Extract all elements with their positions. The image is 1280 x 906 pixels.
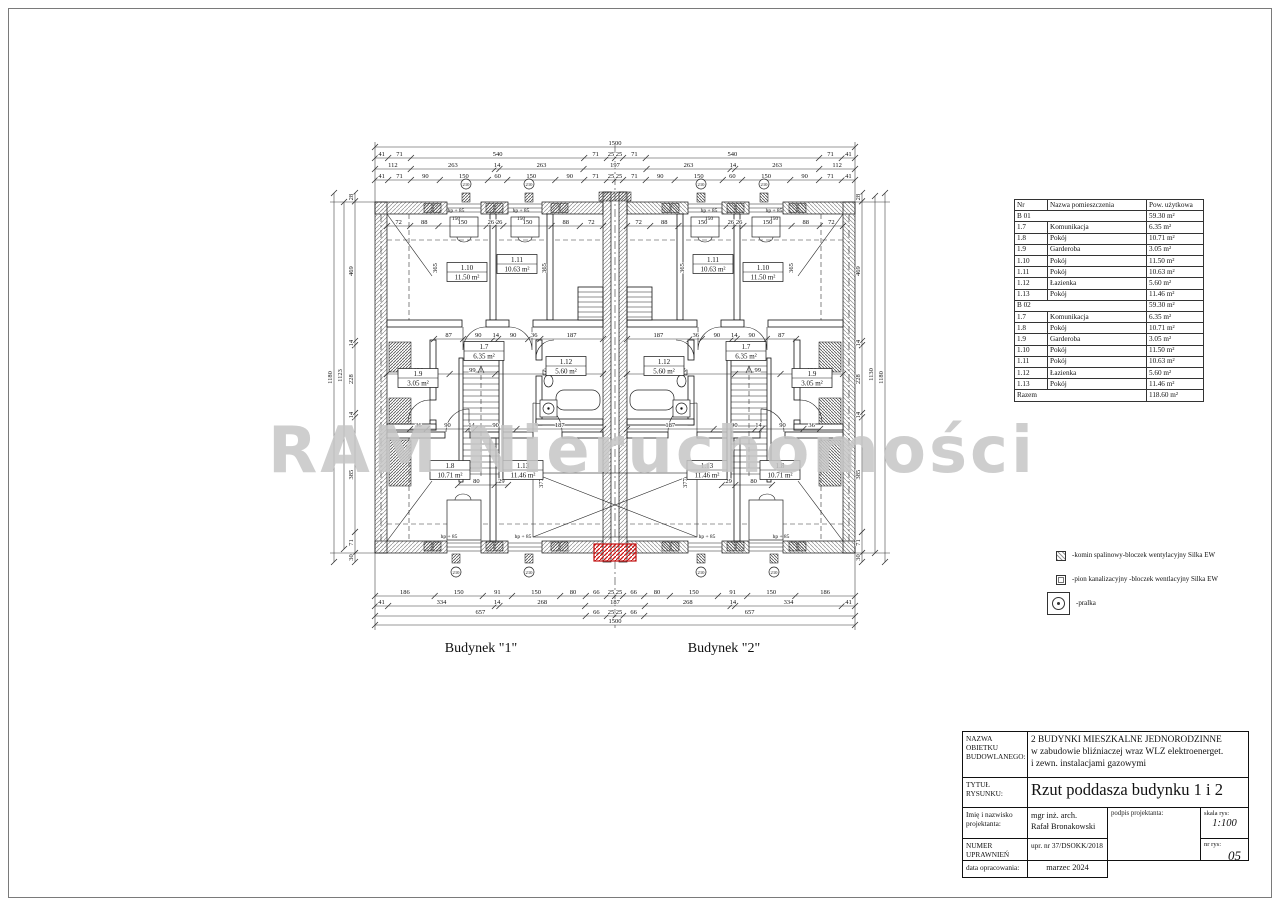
svg-text:150: 150 <box>689 589 699 596</box>
drawing-title-value: Rzut poddasza budynku 1 i 2 <box>1028 778 1249 808</box>
table-row: B 0259.30 m² <box>1015 300 1204 311</box>
dim-right-inner: 1130 <box>868 193 878 556</box>
svg-text:150: 150 <box>531 589 541 596</box>
svg-text:28: 28 <box>348 194 355 201</box>
cell-nr: 1.8 <box>1015 233 1048 244</box>
table-row: 1.10Pokój11.50 m² <box>1015 345 1204 356</box>
table-row: B 0159.30 m² <box>1015 211 1204 222</box>
room-label-b2-19: 1.9 3.05 m² <box>792 369 832 388</box>
svg-text:263: 263 <box>772 162 782 169</box>
building-2-caption: Budynek "2" <box>688 641 760 656</box>
svg-text:80: 80 <box>654 589 661 596</box>
svg-text:87: 87 <box>445 332 452 339</box>
svg-text:88: 88 <box>661 219 668 226</box>
chimney-highlight <box>594 544 636 561</box>
cell-area: 6.35 m² <box>1147 222 1204 233</box>
cell-area: 5.60 m² <box>1147 278 1204 289</box>
svg-text:187: 187 <box>555 422 566 429</box>
svg-text:99: 99 <box>469 367 476 374</box>
svg-text:365: 365 <box>432 263 439 273</box>
svg-text:657: 657 <box>476 609 487 616</box>
svg-text:14: 14 <box>348 339 355 346</box>
table-row: 1.7Komunikacja6.35 m² <box>1015 222 1204 233</box>
cell-area: 59.30 m² <box>1147 211 1204 222</box>
svg-text:hp + 85: hp + 85 <box>766 208 783 214</box>
svg-text:150: 150 <box>452 216 461 222</box>
svg-text:41: 41 <box>378 151 385 158</box>
svg-text:210: 210 <box>526 182 534 187</box>
svg-text:hp + 85: hp + 85 <box>441 534 458 540</box>
cell-name: Garderoba <box>1048 334 1147 345</box>
cell-area: 11.46 m² <box>1147 289 1204 300</box>
cell-name: Pokój <box>1048 289 1147 300</box>
cell-group: Razem <box>1015 390 1147 401</box>
party-wall <box>533 145 697 628</box>
cell-area: 118.60 m² <box>1147 390 1204 401</box>
svg-text:36: 36 <box>415 422 422 429</box>
svg-text:hp + 85: hp + 85 <box>515 534 532 540</box>
svg-text:10.71 m²: 10.71 m² <box>767 472 792 480</box>
svg-text:88: 88 <box>802 219 809 226</box>
cell-name: Pokój <box>1048 233 1147 244</box>
header-nr: Nr <box>1015 200 1048 211</box>
svg-text:71: 71 <box>631 151 638 158</box>
table-row: 1.11Pokój10.63 m² <box>1015 356 1204 367</box>
svg-text:3.05 m²: 3.05 m² <box>801 380 823 388</box>
svg-text:90: 90 <box>444 422 451 429</box>
room-label-b2-110: 1.10 11.50 m² <box>743 263 783 282</box>
svg-text:210: 210 <box>463 182 471 187</box>
dim-bottom-2: 41334142681872681433441 <box>372 599 858 609</box>
svg-text:60: 60 <box>494 173 501 180</box>
table-row: 1.10Pokój11.50 m² <box>1015 256 1204 267</box>
svg-text:1.13: 1.13 <box>701 462 714 470</box>
cell-nr: 1.12 <box>1015 278 1048 289</box>
svg-text:1.9: 1.9 <box>414 370 423 378</box>
svg-text:11.46 m²: 11.46 m² <box>511 472 536 480</box>
svg-text:72: 72 <box>635 219 642 226</box>
signature-cell: podpis projektanta: <box>1108 808 1201 861</box>
svg-text:11.50 m²: 11.50 m² <box>455 274 480 282</box>
svg-text:66: 66 <box>630 609 637 616</box>
svg-text:469: 469 <box>855 266 862 276</box>
svg-text:1.12: 1.12 <box>658 358 671 366</box>
svg-text:365: 365 <box>788 263 795 273</box>
svg-text:14: 14 <box>468 422 475 429</box>
svg-text:210: 210 <box>761 182 769 187</box>
svg-text:90: 90 <box>748 332 755 339</box>
cell-name: Garderoba <box>1048 244 1147 255</box>
dim-left-inner: 1123 <box>337 199 347 552</box>
room-label-b1-18: 1.8 10.71 m² <box>430 461 470 480</box>
svg-text:334: 334 <box>784 599 795 606</box>
svg-text:5.60 m²: 5.60 m² <box>653 368 675 376</box>
cell-area: 10.71 m² <box>1147 233 1204 244</box>
table-row: Razem118.60 m² <box>1015 390 1204 401</box>
cell-nr: 1.7 <box>1015 222 1048 233</box>
svg-text:88: 88 <box>421 219 428 226</box>
svg-text:41: 41 <box>378 599 385 606</box>
svg-text:150: 150 <box>766 589 776 596</box>
svg-text:71: 71 <box>348 539 355 546</box>
cell-area: 3.05 m² <box>1147 244 1204 255</box>
dim-top-2: 4171540712525715407141 <box>372 151 858 161</box>
sheet-number-label: nr rys: <box>1204 841 1245 848</box>
svg-text:1.11: 1.11 <box>511 256 523 264</box>
svg-text:14: 14 <box>494 599 501 606</box>
room-label-b2-112: 1.12 5.60 m² <box>644 357 684 376</box>
svg-text:71: 71 <box>855 539 862 546</box>
svg-text:112: 112 <box>388 162 398 169</box>
svg-text:210: 210 <box>771 570 779 575</box>
room-area-table: Nr Nazwa pomieszczenia Pow. użytkowa B 0… <box>1014 199 1204 402</box>
cell-name: Pokój <box>1048 345 1147 356</box>
svg-text:41: 41 <box>845 599 852 606</box>
svg-text:263: 263 <box>684 162 694 169</box>
svg-text:41: 41 <box>378 173 385 180</box>
svg-text:150: 150 <box>454 589 464 596</box>
svg-text:5.60 m²: 5.60 m² <box>555 368 577 376</box>
svg-text:150: 150 <box>705 216 714 222</box>
legend-item-komin: -komin spalinowy-bloczek wentylacyjny Si… <box>1072 551 1215 559</box>
cell-area: 11.50 m² <box>1147 256 1204 267</box>
dim-b1-corr: 8790149036187 <box>431 332 606 342</box>
svg-text:187: 187 <box>653 332 664 339</box>
svg-text:11.50 m²: 11.50 m² <box>751 274 776 282</box>
dim-right-col: 2846914228143857130 <box>855 190 865 565</box>
sheet-number-cell: nr rys: 05 <box>1201 839 1249 861</box>
svg-text:1.11: 1.11 <box>707 256 719 264</box>
room-label-b1-17: 1.7 6.35 m² <box>464 342 504 361</box>
svg-text:1.13: 1.13 <box>517 462 530 470</box>
svg-text:10.71 m²: 10.71 m² <box>437 472 462 480</box>
cell-nr: 1.7 <box>1015 312 1048 323</box>
room-label-b1-111: 1.11 10.63 m² <box>497 255 537 274</box>
drawing-sheet: 1500 4171540712525715407141 112263142631… <box>0 0 1280 906</box>
svg-text:25: 25 <box>608 609 615 616</box>
svg-text:14: 14 <box>855 411 862 418</box>
cell-group: B 01 <box>1015 211 1147 222</box>
svg-text:268: 268 <box>683 599 693 606</box>
svg-text:1.8: 1.8 <box>776 462 785 470</box>
legend-item-pralka: -pralka <box>1076 599 1096 607</box>
scale-cell: skala rys: 1:100 <box>1201 808 1249 839</box>
svg-text:90: 90 <box>475 332 482 339</box>
sheet-number-value: 05 <box>1204 848 1245 861</box>
svg-text:1130: 1130 <box>868 368 875 381</box>
cell-name: Pokój <box>1048 323 1147 334</box>
svg-text:14: 14 <box>755 422 762 429</box>
cell-nr: 1.10 <box>1015 256 1048 267</box>
svg-text:187: 187 <box>567 332 578 339</box>
cell-area: 11.50 m² <box>1147 345 1204 356</box>
room-label-b1-110: 1.10 11.50 m² <box>447 263 487 282</box>
svg-text:228: 228 <box>855 374 862 384</box>
svg-text:187: 187 <box>610 599 621 606</box>
svg-text:91: 91 <box>494 589 501 596</box>
cell-name: Łazienka <box>1048 368 1147 379</box>
dim-left-col: 2846914228143857130 <box>348 190 358 565</box>
cell-area: 6.35 m² <box>1147 312 1204 323</box>
cell-name: Pokój <box>1048 267 1147 278</box>
svg-text:26: 26 <box>488 219 495 226</box>
svg-text:1123: 1123 <box>337 369 344 382</box>
svg-text:41: 41 <box>845 173 852 180</box>
svg-text:1180: 1180 <box>878 371 885 384</box>
table-row: 1.12Łazienka5.60 m² <box>1015 278 1204 289</box>
cell-name: Pokój <box>1048 256 1147 267</box>
svg-text:14: 14 <box>730 162 737 169</box>
svg-text:71: 71 <box>631 173 638 180</box>
svg-text:25: 25 <box>616 609 623 616</box>
svg-text:hp + 85: hp + 85 <box>513 208 530 214</box>
legend-item-pion: -pion kanalizacyjny -bloczek wentlacyjny… <box>1072 575 1218 583</box>
pralka-icon <box>1047 592 1070 615</box>
interior-vertical-dims: 365 365 377 365 365 377 <box>432 263 795 488</box>
svg-text:1.7: 1.7 <box>480 343 489 351</box>
svg-text:210: 210 <box>698 182 706 187</box>
svg-text:90: 90 <box>657 173 664 180</box>
svg-text:71: 71 <box>396 173 403 180</box>
drawing-title-label: TYTUŁ RYSUNKU: <box>963 778 1028 808</box>
object-name-value: 2 BUDYNKI MIESZKALNE JEDNORODZINNE w zab… <box>1028 732 1249 778</box>
cell-area: 5.60 m² <box>1147 368 1204 379</box>
svg-text:1.12: 1.12 <box>560 358 573 366</box>
svg-text:30: 30 <box>855 554 862 561</box>
svg-text:334: 334 <box>437 599 448 606</box>
svg-text:36: 36 <box>692 332 699 339</box>
permit-label: NUMER UPRAWNIEŃ BUDOWLANYCH: <box>963 839 1028 861</box>
cell-nr: 1.13 <box>1015 379 1048 390</box>
svg-text:91: 91 <box>729 589 736 596</box>
svg-text:210: 210 <box>698 570 706 575</box>
table-row: 1.7Komunikacja6.35 m² <box>1015 312 1204 323</box>
room-label-b1-112: 1.12 5.60 m² <box>546 357 586 376</box>
cell-nr: 1.13 <box>1015 289 1048 300</box>
svg-text:36: 36 <box>531 332 538 339</box>
svg-text:1500: 1500 <box>609 618 622 625</box>
date-label: data opracowania: <box>963 861 1028 878</box>
komin-icon <box>1056 551 1066 561</box>
svg-text:90: 90 <box>422 173 429 180</box>
cell-name: Komunikacja <box>1048 312 1147 323</box>
room-label-b2-111: 1.11 10.63 m² <box>693 255 733 274</box>
cell-area: 10.71 m² <box>1147 323 1204 334</box>
scale-value: 1:100 <box>1204 818 1245 829</box>
svg-text:71: 71 <box>827 151 834 158</box>
svg-text:10.63 m²: 10.63 m² <box>504 266 529 274</box>
dim-top-3: 1122631426319726314263112 <box>372 162 858 172</box>
cell-area: 11.46 m² <box>1147 379 1204 390</box>
cell-name: Pokój <box>1048 379 1147 390</box>
table-row: 1.8Pokój10.71 m² <box>1015 323 1204 334</box>
cell-name: Pokój <box>1048 356 1147 367</box>
svg-text:71: 71 <box>827 173 834 180</box>
svg-text:1.10: 1.10 <box>757 264 770 272</box>
svg-text:72: 72 <box>828 219 835 226</box>
svg-text:25: 25 <box>616 151 623 158</box>
svg-text:210: 210 <box>526 570 534 575</box>
svg-text:657: 657 <box>745 609 756 616</box>
svg-text:150: 150 <box>770 216 779 222</box>
svg-text:99: 99 <box>754 367 761 374</box>
table-row: 1.13Pokój11.46 m² <box>1015 379 1204 390</box>
room-label-b2-17: 1.7 6.35 m² <box>726 342 766 361</box>
svg-text:14: 14 <box>731 332 738 339</box>
table-row: 1.11Pokój10.63 m² <box>1015 267 1204 278</box>
svg-text:26: 26 <box>736 219 743 226</box>
object-name-label: NAZWA OBIETKU BUDOWLANEGO: <box>963 732 1028 778</box>
designer-label: Imię i nazwisko projektanta: <box>963 808 1028 839</box>
svg-text:hp + 85: hp + 85 <box>773 534 790 540</box>
svg-text:28: 28 <box>855 194 862 201</box>
svg-text:60: 60 <box>729 173 736 180</box>
cell-nr: 1.11 <box>1015 356 1048 367</box>
svg-text:26: 26 <box>728 219 735 226</box>
svg-text:263: 263 <box>537 162 547 169</box>
svg-text:14: 14 <box>855 339 862 346</box>
title-block: NAZWA OBIETKU BUDOWLANEGO: 2 BUDYNKI MIE… <box>962 731 1249 878</box>
svg-text:14: 14 <box>492 332 499 339</box>
table-row: 1.8Pokój10.71 m² <box>1015 233 1204 244</box>
dim-b2-corr: 1873690149087 <box>624 332 799 342</box>
svg-text:197: 197 <box>610 162 621 169</box>
svg-text:30: 30 <box>348 554 355 561</box>
svg-text:80: 80 <box>473 478 480 485</box>
svg-text:90: 90 <box>492 422 499 429</box>
svg-text:hp + 85: hp + 85 <box>699 534 716 540</box>
svg-text:71: 71 <box>592 173 599 180</box>
cell-nr: 1.11 <box>1015 267 1048 278</box>
svg-text:66: 66 <box>630 589 637 596</box>
permit-value: upr. nr 37/DSOKK/2018 <box>1028 839 1108 861</box>
cell-nr: 1.8 <box>1015 323 1048 334</box>
svg-text:187: 187 <box>665 422 676 429</box>
svg-text:14: 14 <box>494 162 501 169</box>
svg-text:90: 90 <box>801 173 808 180</box>
room-label-b2-18: 1.8 10.71 m² <box>760 461 800 480</box>
svg-text:71: 71 <box>396 151 403 158</box>
svg-text:540: 540 <box>728 151 738 158</box>
svg-text:36: 36 <box>808 422 815 429</box>
svg-text:26: 26 <box>496 219 503 226</box>
svg-text:25: 25 <box>616 173 623 180</box>
header-area: Pow. użytkowa <box>1147 200 1204 211</box>
svg-text:1.10: 1.10 <box>461 264 474 272</box>
table-row: 1.12Łazienka5.60 m² <box>1015 368 1204 379</box>
svg-text:1500: 1500 <box>609 140 622 147</box>
svg-text:6.35 m²: 6.35 m² <box>735 353 757 361</box>
svg-text:385: 385 <box>855 470 862 480</box>
header-name: Nazwa pomieszczenia <box>1048 200 1147 211</box>
room-label-b1-19: 1.9 3.05 m² <box>398 369 438 388</box>
svg-text:186: 186 <box>820 589 831 596</box>
scale-label: skala rys: <box>1204 810 1245 817</box>
svg-text:210: 210 <box>453 570 461 575</box>
svg-text:186: 186 <box>400 589 411 596</box>
cell-area: 59.30 m² <box>1147 300 1204 311</box>
svg-text:14: 14 <box>348 411 355 418</box>
svg-text:228: 228 <box>348 374 355 384</box>
svg-text:90: 90 <box>510 332 517 339</box>
svg-text:41: 41 <box>845 151 852 158</box>
svg-text:150: 150 <box>517 216 526 222</box>
building-1-caption: Budynek "1" <box>445 641 517 656</box>
svg-text:66: 66 <box>593 609 600 616</box>
room-label-b2-113: 1.13 11.46 m² <box>687 461 727 480</box>
cell-nr: 1.9 <box>1015 244 1048 255</box>
svg-text:66: 66 <box>593 589 600 596</box>
svg-text:540: 540 <box>493 151 503 158</box>
svg-text:11.46 m²: 11.46 m² <box>695 472 720 480</box>
svg-text:1.7: 1.7 <box>742 343 751 351</box>
svg-text:1180: 1180 <box>327 371 334 384</box>
svg-text:87: 87 <box>778 332 785 339</box>
svg-text:80: 80 <box>570 589 577 596</box>
svg-text:72: 72 <box>588 219 595 226</box>
svg-text:hp + 85: hp + 85 <box>701 208 718 214</box>
svg-text:10.63 m²: 10.63 m² <box>700 266 725 274</box>
svg-text:268: 268 <box>537 599 547 606</box>
svg-text:72: 72 <box>395 219 402 226</box>
cell-area: 10.63 m² <box>1147 356 1204 367</box>
svg-text:25: 25 <box>608 173 615 180</box>
svg-text:365: 365 <box>541 263 548 273</box>
svg-text:6.35 m²: 6.35 m² <box>473 353 495 361</box>
svg-text:71: 71 <box>592 151 599 158</box>
date-value: marzec 2024 <box>1028 861 1108 878</box>
svg-text:1.8: 1.8 <box>446 462 455 470</box>
table-row: 1.9Garderoba3.05 m² <box>1015 334 1204 345</box>
cell-area: 3.05 m² <box>1147 334 1204 345</box>
pion-icon <box>1056 575 1066 585</box>
dim-right-outer: 1180 <box>878 190 888 565</box>
svg-text:90: 90 <box>779 422 786 429</box>
cell-name: Łazienka <box>1048 278 1147 289</box>
svg-text:88: 88 <box>562 219 569 226</box>
cell-nr: 1.9 <box>1015 334 1048 345</box>
svg-text:90: 90 <box>731 422 738 429</box>
svg-text:25: 25 <box>608 589 615 596</box>
dim-left-outer: 1180 <box>327 190 337 565</box>
svg-text:90: 90 <box>567 173 574 180</box>
svg-text:3.05 m²: 3.05 m² <box>407 380 429 388</box>
svg-text:80: 80 <box>750 478 757 485</box>
cell-nr: 1.10 <box>1015 345 1048 356</box>
svg-text:112: 112 <box>832 162 842 169</box>
table-row: 1.13Pokój11.46 m² <box>1015 289 1204 300</box>
svg-text:1.9: 1.9 <box>808 370 817 378</box>
room-label-b1-113: 1.13 11.46 m² <box>503 461 543 480</box>
svg-text:25: 25 <box>616 589 623 596</box>
cell-nr: 1.12 <box>1015 368 1048 379</box>
svg-text:469: 469 <box>348 266 355 276</box>
svg-text:14: 14 <box>730 599 737 606</box>
cell-area: 10.63 m² <box>1147 267 1204 278</box>
svg-text:385: 385 <box>348 470 355 480</box>
svg-text:25: 25 <box>608 151 615 158</box>
svg-text:90: 90 <box>714 332 721 339</box>
table-header-row: Nr Nazwa pomieszczenia Pow. użytkowa <box>1015 200 1204 211</box>
svg-text:365: 365 <box>679 263 686 273</box>
cell-name: Komunikacja <box>1048 222 1147 233</box>
cell-group: B 02 <box>1015 300 1147 311</box>
designer-value: mgr inż. arch. Rafał Bronakowski <box>1028 808 1108 839</box>
svg-text:hp + 85: hp + 85 <box>448 208 465 214</box>
svg-text:263: 263 <box>448 162 458 169</box>
table-row: 1.9Garderoba3.05 m² <box>1015 244 1204 255</box>
